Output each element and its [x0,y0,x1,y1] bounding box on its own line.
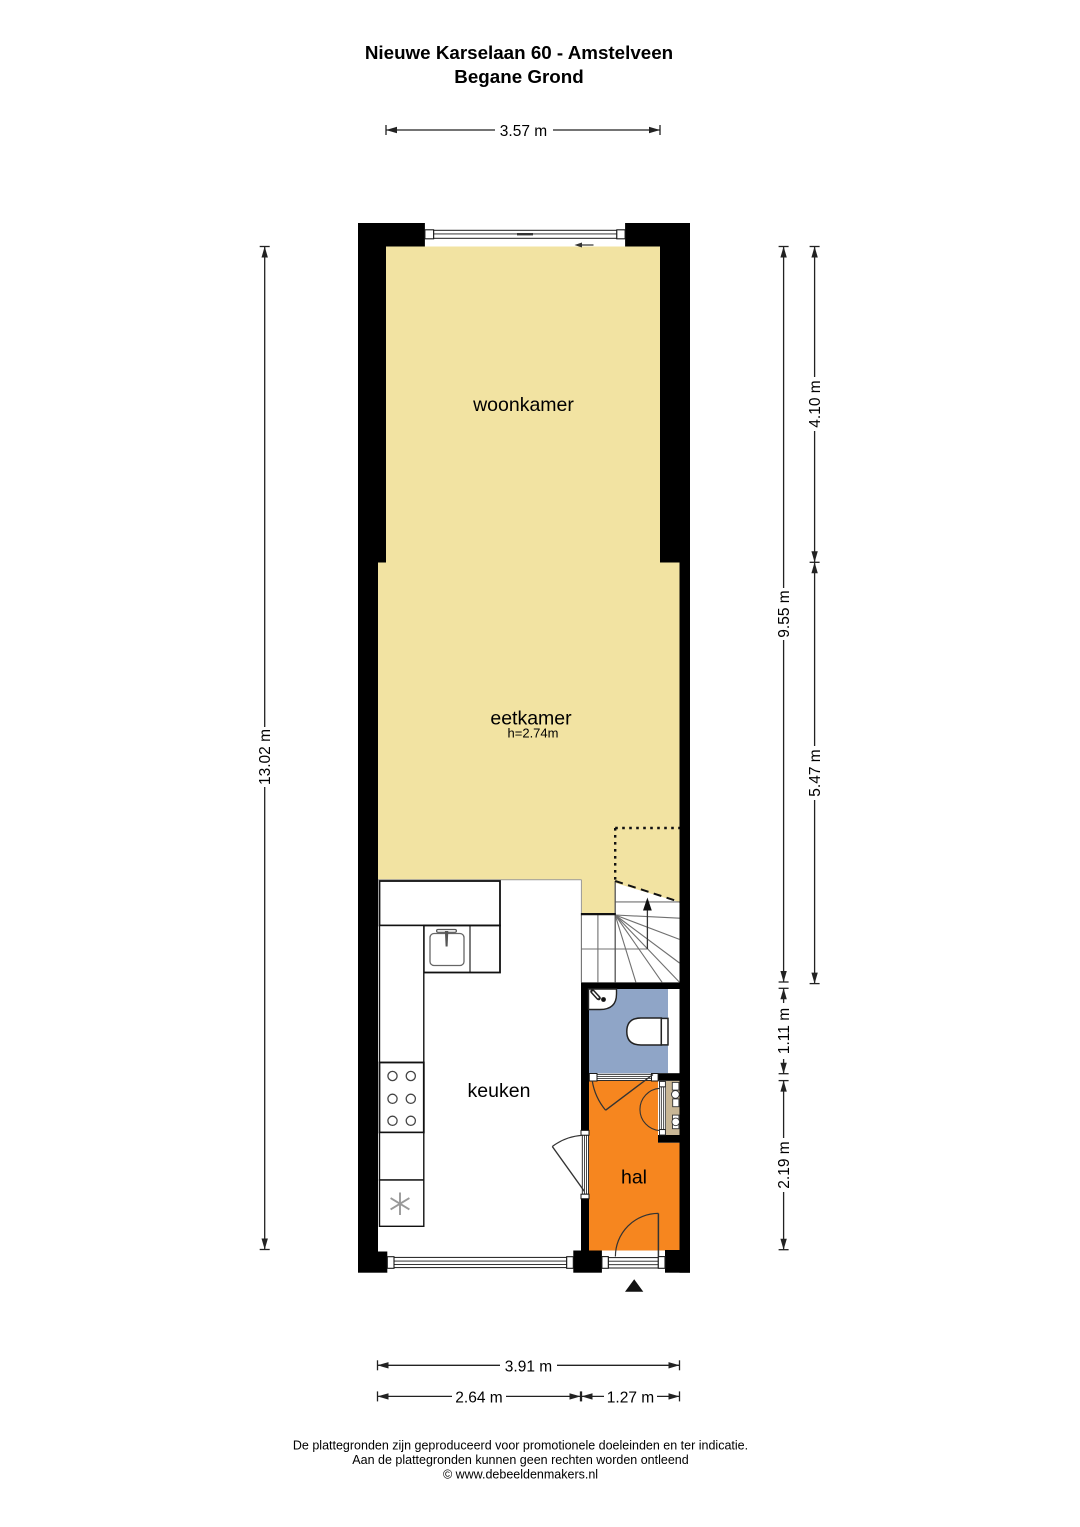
svg-text:1.27 m: 1.27 m [607,1389,654,1406]
svg-text:3.91 m: 3.91 m [505,1358,552,1375]
svg-text:De plattegronden zijn geproduc: De plattegronden zijn geproduceerd voor … [293,1438,748,1452]
svg-text:Aan de plattegronden kunnen ge: Aan de plattegronden kunnen geen rechten… [352,1453,688,1467]
svg-text:9.55 m: 9.55 m [776,590,793,637]
svg-text:1.11 m: 1.11 m [776,1008,793,1054]
svg-text:2.19 m: 2.19 m [776,1141,793,1188]
svg-text:Begane Grond: Begane Grond [454,66,583,87]
svg-text:hal: hal [621,1167,647,1189]
svg-text:13.02 m: 13.02 m [257,729,274,785]
svg-text:keuken: keuken [468,1080,531,1102]
svg-text:3.57 m: 3.57 m [500,123,547,140]
svg-text:© www.debeeldenmakers.nl: © www.debeeldenmakers.nl [443,1467,598,1481]
svg-text:2.64 m: 2.64 m [455,1389,502,1406]
svg-text:5.47 m: 5.47 m [807,749,824,796]
svg-text:4.10 m: 4.10 m [807,380,824,427]
svg-text:Nieuwe Karselaan 60 - Amstelve: Nieuwe Karselaan 60 - Amstelveen [365,42,673,63]
svg-text:woonkamer: woonkamer [472,394,574,416]
svg-text:h=2.74m: h=2.74m [508,726,559,741]
